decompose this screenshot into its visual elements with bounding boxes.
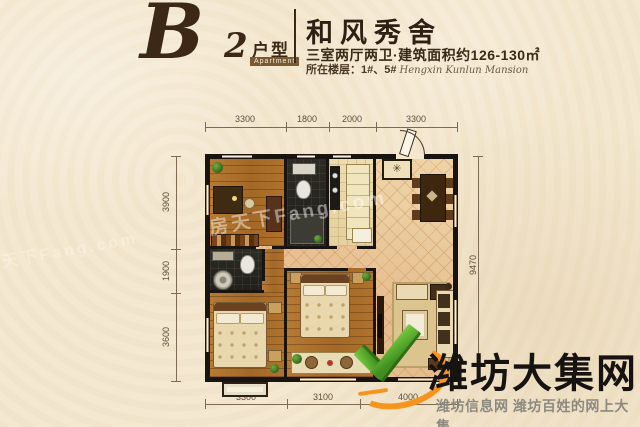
plant-icon xyxy=(362,272,371,281)
dim-top-4: 3300 xyxy=(396,114,436,124)
dim-right-1: 9470 xyxy=(468,250,478,280)
plant-icon xyxy=(314,235,322,243)
window xyxy=(297,155,315,158)
dim-tick xyxy=(171,381,181,382)
bed-headboard xyxy=(214,303,266,311)
plant-icon xyxy=(292,354,302,364)
pillow xyxy=(216,313,240,324)
dim-bottom-2: 3100 xyxy=(303,392,343,402)
site-name: 潍坊大集网 xyxy=(428,341,638,399)
bath-shelf xyxy=(212,251,234,261)
nightstand xyxy=(268,302,282,314)
unit-code-b: B xyxy=(140,0,204,76)
window xyxy=(454,195,457,227)
dim-tick xyxy=(287,399,288,409)
bed-bottom-mid xyxy=(300,274,350,338)
dining-chair xyxy=(412,194,420,204)
photo-watermark: 房天下Fang.com xyxy=(0,225,139,276)
floor-lamp-icon xyxy=(445,283,452,290)
wall-interior xyxy=(272,246,337,249)
lamp-icon xyxy=(232,196,237,201)
floor-line-cn: 所在楼层：1#、5# xyxy=(306,64,396,76)
dim-left-3: 3600 xyxy=(161,322,171,352)
dim-line-left xyxy=(176,156,177,382)
bed-headboard xyxy=(301,275,349,283)
unit-code-number: 2 xyxy=(224,26,248,66)
dim-tick xyxy=(171,156,181,157)
wall-interior xyxy=(366,268,373,271)
dim-tick xyxy=(171,249,181,250)
unit-type-label-en: Apartment xyxy=(250,57,299,66)
washbasin xyxy=(292,163,316,175)
pillow xyxy=(240,313,264,324)
fridge xyxy=(352,228,372,243)
window xyxy=(206,185,209,215)
header-divider xyxy=(294,9,296,63)
pillow xyxy=(303,285,325,296)
wall-interior xyxy=(284,268,287,377)
dim-tick xyxy=(205,122,206,132)
dim-left-2: 1900 xyxy=(161,256,171,286)
dim-top-2: 1800 xyxy=(287,114,327,124)
pillow xyxy=(325,285,347,296)
side-table xyxy=(305,356,318,369)
entry-door-swing-arc xyxy=(400,130,425,155)
unit-code-letter: B xyxy=(140,0,204,70)
dim-tick xyxy=(457,122,458,132)
dim-top-3: 2000 xyxy=(332,114,372,124)
wall-interior xyxy=(210,290,264,293)
plant-icon xyxy=(270,364,279,373)
dim-tick xyxy=(329,122,330,132)
dining-chair xyxy=(412,178,420,188)
nightstand xyxy=(268,350,282,362)
toilet-icon xyxy=(240,255,255,274)
window xyxy=(333,155,351,158)
dim-tick xyxy=(473,156,483,157)
site-tagline: 潍坊信息网 潍坊百姓的网上大集 xyxy=(436,396,640,427)
window xyxy=(206,318,209,352)
dim-tick xyxy=(376,122,377,132)
bedroom-entry-nook-floor xyxy=(262,249,284,293)
sofa-cushion xyxy=(438,294,450,308)
window xyxy=(300,378,356,381)
floor-line-en: Hengxin Kunlun Mansion xyxy=(400,65,529,76)
floorplan-flyer: B 2 户型 Apartment 和风秀舍 三室两厅两卫·建筑面积约126-13… xyxy=(0,0,640,427)
dim-left-1: 3900 xyxy=(161,187,171,217)
dim-line-top xyxy=(205,127,458,128)
dim-top-1: 3300 xyxy=(225,114,265,124)
wall-interior xyxy=(262,249,265,281)
washing-machine xyxy=(213,270,233,290)
floor-medallion: ✳ xyxy=(382,159,412,180)
decor-bowl xyxy=(327,360,333,366)
wall-interior xyxy=(287,268,348,271)
bed-bottom-left xyxy=(213,302,267,368)
wall-interior xyxy=(210,246,256,249)
dim-tick xyxy=(171,293,181,294)
bay-window xyxy=(222,382,268,397)
dim-tick xyxy=(205,399,206,409)
armchair xyxy=(396,284,428,300)
floor-line: 所在楼层：1#、5# Hengxin Kunlun Mansion xyxy=(306,61,528,77)
plant-icon xyxy=(212,162,223,173)
dining-chair xyxy=(412,210,420,220)
window xyxy=(222,155,252,158)
wall-interior xyxy=(357,246,373,249)
window xyxy=(454,300,457,344)
